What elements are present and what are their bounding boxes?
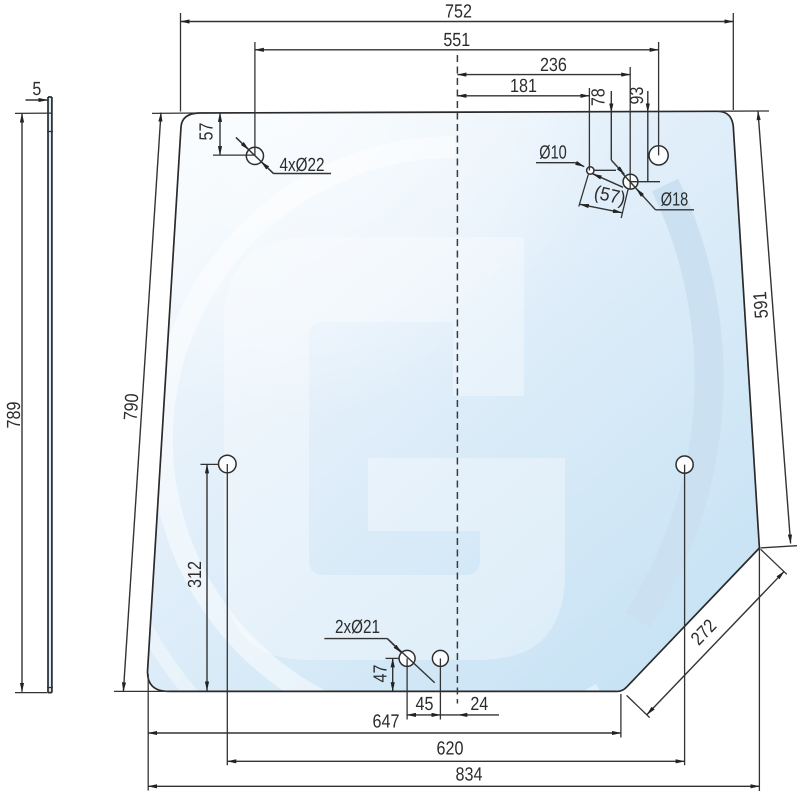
svg-text:24: 24 — [470, 694, 488, 715]
svg-text:57: 57 — [197, 123, 218, 141]
svg-text:Ø18: Ø18 — [661, 189, 689, 210]
svg-text:834: 834 — [456, 764, 483, 785]
svg-text:78: 78 — [589, 88, 610, 106]
svg-text:93: 93 — [627, 87, 648, 105]
svg-text:236: 236 — [540, 55, 567, 76]
svg-text:2xØ21: 2xØ21 — [335, 617, 380, 638]
svg-text:312: 312 — [185, 561, 206, 588]
svg-text:Ø10: Ø10 — [539, 143, 567, 164]
svg-text:647: 647 — [373, 712, 400, 733]
svg-text:591: 591 — [750, 291, 773, 319]
svg-text:45: 45 — [416, 694, 434, 715]
svg-text:790: 790 — [121, 393, 144, 421]
svg-text:551: 551 — [443, 30, 470, 51]
svg-text:620: 620 — [437, 739, 464, 760]
svg-text:47: 47 — [370, 665, 391, 683]
svg-text:181: 181 — [510, 76, 537, 97]
svg-text:4xØ22: 4xØ22 — [280, 155, 325, 176]
svg-text:5: 5 — [32, 79, 41, 100]
svg-text:789: 789 — [4, 402, 25, 429]
svg-text:752: 752 — [445, 2, 472, 23]
